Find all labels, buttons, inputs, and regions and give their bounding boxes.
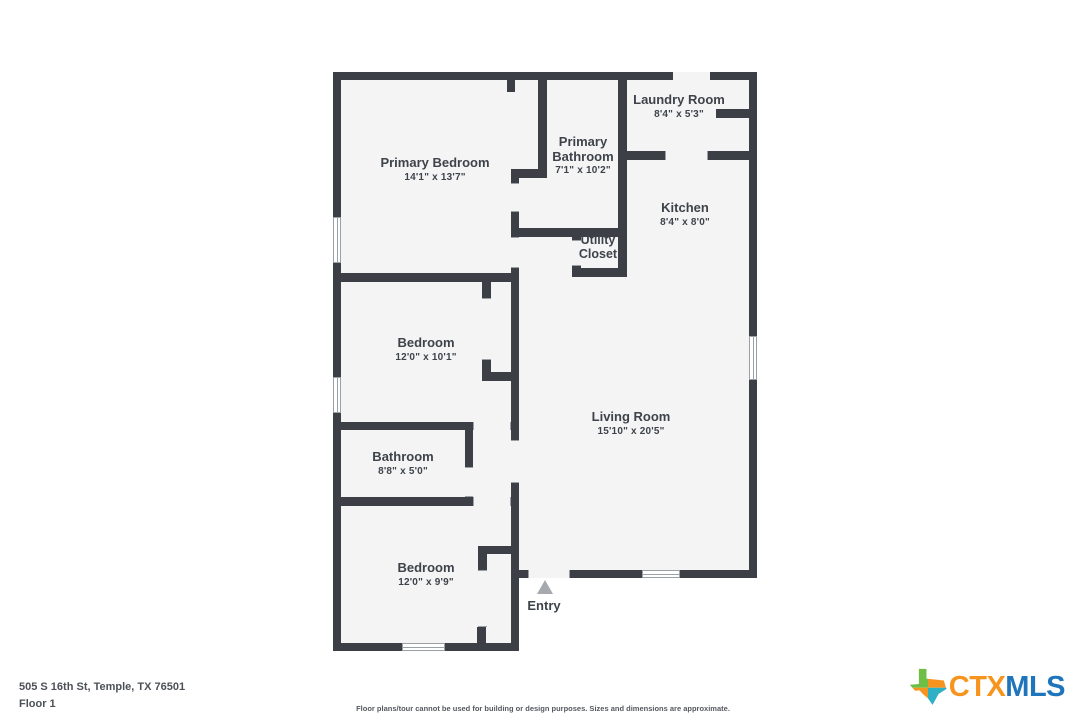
floor-number: Floor 1 <box>19 698 56 710</box>
door-opening <box>465 467 473 497</box>
room-label-laundry-room: Laundry Room 8'4" x 5'3" <box>633 93 725 120</box>
room-name: Living Room <box>592 410 671 425</box>
wall <box>333 273 519 282</box>
room-name: Primary Bathroom <box>543 135 623 164</box>
room-name: Bedroom <box>395 336 456 351</box>
room-label-bathroom: Bathroom 8'8" x 5'0" <box>372 450 433 477</box>
wall <box>570 570 642 578</box>
door-opening <box>511 440 519 483</box>
wall <box>478 546 487 570</box>
room-dimensions: 12'0" x 10'1" <box>395 352 456 363</box>
entry-door-opening <box>528 570 570 578</box>
room-dimensions: 14'1" x 13'7" <box>380 172 489 183</box>
room-dimensions: 12'0" x 9'9" <box>397 577 454 588</box>
room-label-living-room: Living Room 15'10" x 20'5" <box>592 410 671 437</box>
ctxmls-logo: CTXMLS <box>909 668 1065 706</box>
wall <box>708 151 757 160</box>
floor-area <box>333 578 519 651</box>
wall <box>749 72 757 578</box>
wall <box>507 72 515 92</box>
wall <box>572 268 627 277</box>
room-name: Utility Closet <box>571 233 625 261</box>
entry-arrow-icon <box>537 580 553 594</box>
wall <box>680 570 757 578</box>
window <box>402 643 445 651</box>
wall <box>618 151 665 160</box>
wall <box>333 643 402 651</box>
wall <box>511 169 519 183</box>
room-dimensions: 7'1" x 10'2" <box>543 165 623 176</box>
door-opening <box>473 422 511 430</box>
entry-label: Entry <box>527 598 560 613</box>
logo-text: CTXMLS <box>949 673 1065 702</box>
door-opening <box>482 298 491 360</box>
wall <box>465 422 473 467</box>
room-label-primary-bathroom: Primary Bathroom 7'1" x 10'2" <box>543 135 623 176</box>
room-name: Bedroom <box>397 561 454 576</box>
room-label-bedroom-2: Bedroom 12'0" x 10'1" <box>395 336 456 363</box>
door-opening <box>473 497 511 506</box>
room-name: Kitchen <box>660 201 710 216</box>
door-opening <box>665 151 708 160</box>
room-dimensions: 8'4" x 5'3" <box>633 109 725 120</box>
wall <box>511 483 519 651</box>
room-label-utility-closet: Utility Closet <box>571 233 625 261</box>
wall <box>482 282 491 298</box>
floor-plan-page: Primary Bedroom 14'1" x 13'7" Primary Ba… <box>0 0 1086 724</box>
wall <box>511 268 519 440</box>
room-label-bedroom-3: Bedroom 12'0" x 9'9" <box>397 561 454 588</box>
texas-icon <box>909 668 947 706</box>
window <box>333 217 341 263</box>
property-address: 505 S 16th St, Temple, TX 76501 <box>19 681 185 693</box>
door-opening <box>511 183 519 212</box>
door-opening <box>511 237 519 268</box>
room-label-kitchen: Kitchen 8'4" x 8'0" <box>660 201 710 228</box>
room-name: Laundry Room <box>633 93 725 108</box>
wall <box>333 72 341 651</box>
logo-mls: MLS <box>1005 671 1065 703</box>
room-dimensions: 15'10" x 20'5" <box>592 426 671 437</box>
window <box>749 336 757 380</box>
room-label-primary-bedroom: Primary Bedroom 14'1" x 13'7" <box>380 156 489 183</box>
room-dimensions: 8'4" x 8'0" <box>660 217 710 228</box>
wall <box>333 497 473 506</box>
room-name: Primary Bedroom <box>380 156 489 171</box>
room-dimensions: 8'8" x 5'0" <box>372 466 433 477</box>
disclaimer-text: Floor plans/tour cannot be used for buil… <box>356 704 730 713</box>
door-opening <box>478 570 487 627</box>
wall <box>482 372 519 381</box>
wall <box>333 422 473 430</box>
window <box>333 377 341 413</box>
wall-opening <box>673 72 710 80</box>
window <box>642 570 680 578</box>
logo-ctx: CTX <box>949 671 1006 703</box>
wall <box>477 627 486 651</box>
room-name: Bathroom <box>372 450 433 465</box>
